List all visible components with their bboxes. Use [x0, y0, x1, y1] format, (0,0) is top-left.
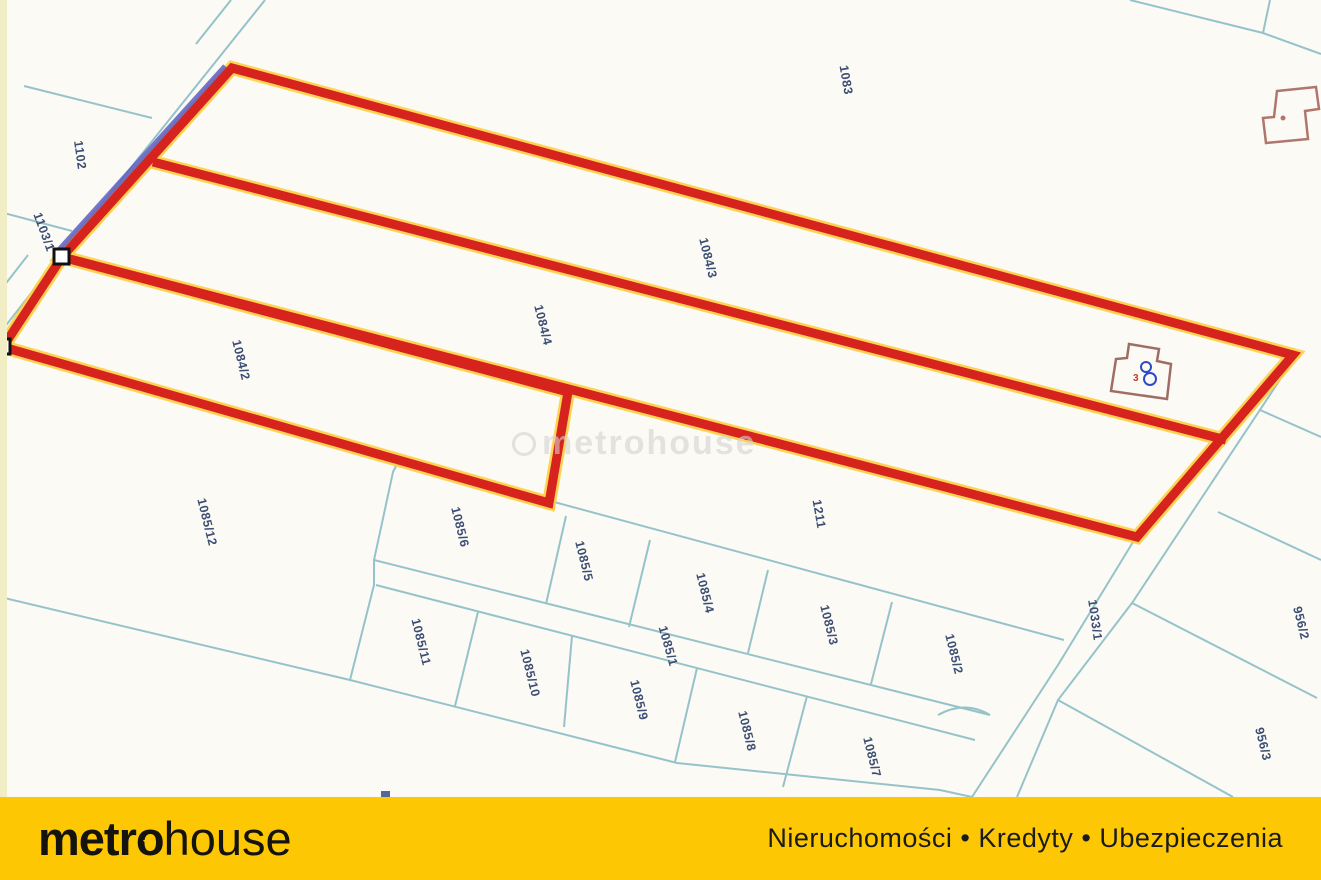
parcel-label-1085/2: 1085/2 [942, 632, 966, 675]
building-symbol-icon [1144, 373, 1156, 385]
parcel-label-1084/2: 1084/2 [229, 338, 253, 381]
parcel-label-1084/3: 1084/3 [696, 236, 720, 279]
divider-1085-3-2 [871, 602, 892, 684]
divider-1085-6-5 [546, 516, 566, 604]
logo-metro-text: metr [38, 815, 136, 862]
parcel-label-956/2: 956/2 [1290, 605, 1312, 641]
divider-1085-11-10 [455, 612, 478, 706]
cadastral-map-svg: 3 11021103/110831084/31084/41084/2 [0, 0, 1321, 797]
boundary-topright-branch [1263, 0, 1270, 33]
boundary-956-2-south [1132, 603, 1317, 698]
parcel-label-1085/1: 1085/1 [656, 624, 681, 667]
building-footprint-on-parcel [1111, 344, 1171, 399]
map-edge-strip [0, 0, 7, 797]
parcel-label-1084/4: 1084/4 [531, 303, 555, 346]
divider-1085-9-8 [675, 668, 697, 762]
divider-1085-5-4 [629, 540, 650, 627]
footer-tagline: Nieruchomości • Kredyty • Ubezpieczenia [767, 823, 1283, 854]
logo-house-text: house [164, 815, 292, 862]
building-dot [1281, 116, 1286, 121]
selected-parcel-outline[interactable] [3, 68, 1293, 537]
logo-o: o [136, 815, 164, 862]
parcel-label-1085/10: 1085/10 [517, 648, 542, 699]
highlight-strip [3, 257, 568, 503]
vertex-marker [54, 249, 69, 264]
map-canvas[interactable]: 3 11021103/110831084/31084/41084/2 [0, 0, 1321, 797]
parcel-label-956/3: 956/3 [1252, 726, 1274, 762]
divider-1085-4-3 [748, 570, 768, 653]
parcel-label-1085/6: 1085/6 [448, 505, 472, 548]
parcel-label-1102: 1102 [71, 140, 89, 171]
parcel-label-1085/5: 1085/5 [572, 539, 596, 582]
boundary-topright-main [1130, 0, 1321, 54]
selected-parcel-divider[interactable] [153, 162, 1226, 440]
divider-1085-8-7 [783, 696, 807, 787]
parcel-label-1085/4: 1085/4 [693, 571, 717, 614]
boundary-lane-1085-1-north [374, 560, 990, 715]
parcel-label-1083: 1083 [837, 64, 856, 96]
boundary-1085-12-east [350, 458, 400, 680]
parcel-label-1085/3: 1085/3 [817, 603, 841, 646]
parcel-label-1103/1: 1103/1 [30, 211, 57, 254]
boundary-road-topleft-west-upper [196, 0, 231, 44]
selected-parcel-1084-2[interactable] [3, 257, 568, 503]
building-number-label: 3 [1133, 373, 1139, 384]
parcel-label-1211: 1211 [810, 498, 829, 529]
boundary-956-north-b [1218, 512, 1321, 560]
boundary-road-1033-west [972, 542, 1133, 797]
parcel-label-1085/11: 1085/11 [408, 617, 433, 667]
boundary-956-3-south [1058, 700, 1233, 797]
parcel-label-1085/7: 1085/7 [860, 735, 884, 778]
divider-1085-10-9 [564, 636, 572, 727]
building-symbol-icon [1141, 362, 1151, 372]
screenshot-root: 3 11021103/110831084/31084/41084/2 [0, 0, 1321, 880]
parcel-label-1033/1: 1033/1 [1085, 599, 1105, 642]
metrohouse-logo: metrohouse [38, 815, 292, 862]
parcel-label-1085/9: 1085/9 [627, 678, 651, 721]
parcel-label-1085/8: 1085/8 [735, 709, 759, 752]
building-footprint-northeast [1263, 87, 1319, 143]
boundary-956-north-a [1260, 410, 1321, 437]
parcel-label-1085/12: 1085/12 [194, 497, 219, 548]
footer-bar: metrohouse Nieruchomości • Kredyty • Ube… [0, 797, 1321, 880]
boundary-1102-south [24, 86, 152, 118]
